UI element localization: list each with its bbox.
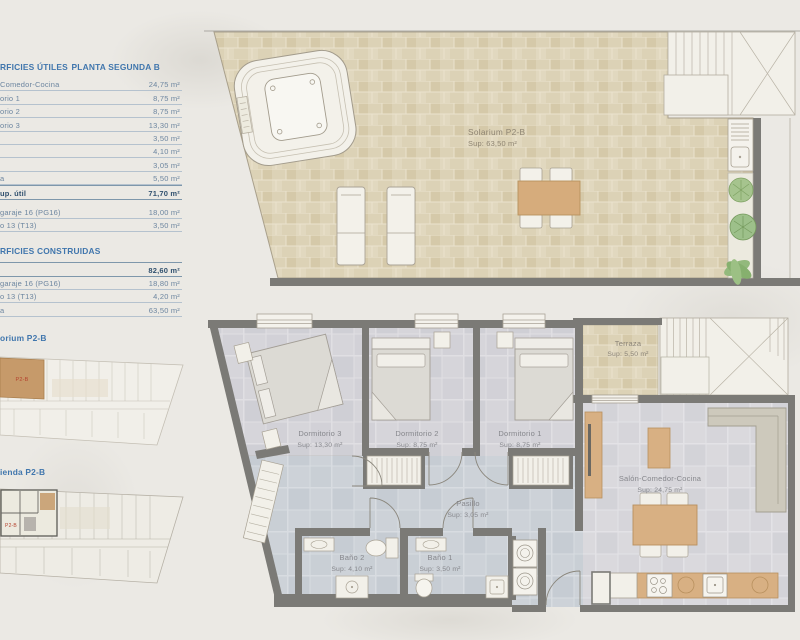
highlighted-unit: P2-B (1, 490, 57, 536)
areas-table-header: RFICIES ÚTILES PLANTA SEGUNDA B (0, 62, 160, 72)
key-plan-vivienda: P2-B (0, 483, 185, 591)
table-row: o 13 (T13)3,50 m² (0, 219, 182, 232)
room-sup-label: Sup: 3,05 m² (447, 512, 489, 519)
plan-sheet: RFICIES ÚTILES PLANTA SEGUNDA B Comedor-… (0, 0, 800, 640)
stairs (660, 318, 788, 395)
table-row-total: 82,60 m² (0, 262, 182, 276)
table-row: garaje 16 (PG16)18,00 m² (0, 206, 182, 219)
table-row: orio 313,30 m² (0, 118, 182, 131)
room-sup-label: Sup: 24,75 m² (637, 487, 683, 494)
plan-title: PLANTA SEGUNDA B (72, 62, 161, 72)
room-sup-label: Sup: 13,30 m² (297, 442, 343, 449)
room-label: Pasillo (456, 499, 480, 508)
vanity (416, 538, 446, 551)
table-row: orio 18,75 m² (0, 91, 182, 104)
sink-icon (703, 574, 727, 597)
room-sup-label: Sup: 8,75 m² (499, 442, 541, 449)
room-label: Dormitorio 2 (395, 429, 438, 438)
apartment-floor-plan: Terraza Sup: 5,50 m² Dormitorio 3 Sup: 1… (200, 312, 800, 637)
table-row: Comedor-Cocina24,75 m² (0, 78, 182, 91)
areas-table: RFICIES ÚTILES PLANTA SEGUNDA B Comedor-… (0, 62, 182, 593)
table-row: orio 28,75 m² (0, 105, 182, 118)
wardrobe (509, 452, 573, 489)
plant-icon (729, 178, 753, 202)
toilet-icon (415, 574, 433, 597)
kitchen-counter (608, 573, 778, 598)
room-label: Baño 1 (428, 553, 453, 562)
room-sup-label: Sup: 5,50 m² (607, 351, 649, 358)
sun-lounger (387, 187, 415, 265)
room-label: Dormitorio 1 (498, 429, 541, 438)
shower-icon (486, 576, 508, 598)
table-row-total: up. útil71,70 m² (0, 185, 182, 199)
entry-closet (592, 572, 610, 604)
table-row: a5,50 m² (0, 172, 182, 185)
room-label: Baño 2 (340, 553, 365, 562)
room-label: Dormitorio 3 (298, 429, 341, 438)
vanity (304, 538, 334, 551)
sun-lounger (337, 187, 365, 265)
stairs (664, 32, 795, 115)
sideboard (648, 428, 670, 468)
unit-label: P2-B (5, 523, 17, 529)
room-sup-label: Sup: 3,50 m² (419, 566, 461, 573)
terraza-floor (577, 325, 658, 395)
room-label: Salón-Comedor-Cocina (619, 474, 702, 483)
table-row: 4,10 m² (0, 145, 182, 158)
table-row: 3,50 m² (0, 132, 182, 145)
key-plan-label-vivienda: ienda P2-B (0, 467, 182, 477)
utiles-title: RFICIES ÚTILES (0, 62, 68, 72)
solarium-floor-plan: Solarium P2-B Sup: 63,50 m² (200, 15, 800, 309)
room-sup-label: Sup: 8,75 m² (396, 442, 438, 449)
wall (753, 118, 761, 286)
unit-label: P2-B (15, 377, 28, 383)
table-row: a63,50 m² (0, 303, 182, 316)
cooktop-icon (647, 574, 672, 597)
key-plan-solarium: P2-B (0, 349, 185, 449)
room-sup-label: Sup: 4,10 m² (331, 566, 373, 573)
shower-icon (336, 576, 368, 598)
wall (270, 278, 800, 286)
key-plan-label-solarium: orium P2-B (0, 333, 182, 343)
room-sup-label: Sup: 63,50 m² (468, 139, 517, 148)
tv-unit (585, 412, 602, 498)
jacuzzi (231, 47, 360, 170)
table-row: garaje 16 (PG16)18,80 m² (0, 277, 182, 290)
table-row: o 13 (T13)4,20 m² (0, 290, 182, 303)
outdoor-kitchen (728, 119, 753, 171)
wardrobe (363, 452, 425, 489)
room-label: Terraza (615, 339, 642, 348)
room-label: Solarium P2-B (468, 127, 526, 137)
table-row: 3,05 m² (0, 158, 182, 171)
plant-icon (730, 214, 756, 240)
construidas-title: RFICIES CONSTRUIDAS (0, 246, 182, 256)
